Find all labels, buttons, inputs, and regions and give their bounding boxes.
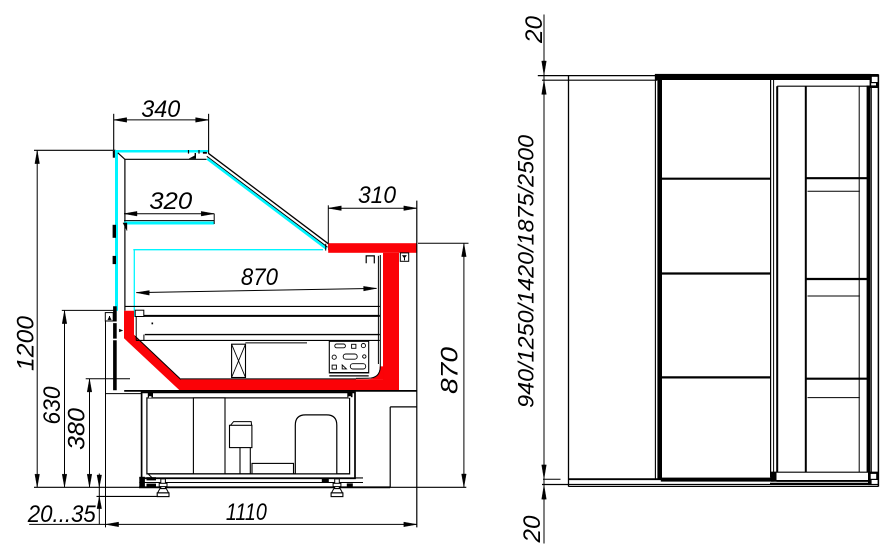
- svg-text:940/1250/1420/1875/2500: 940/1250/1420/1875/2500: [514, 134, 539, 408]
- svg-text:870: 870: [241, 264, 279, 291]
- svg-text:1200: 1200: [12, 315, 39, 371]
- svg-text:20: 20: [521, 15, 548, 44]
- svg-text:20: 20: [519, 515, 546, 544]
- svg-text:630: 630: [39, 386, 66, 425]
- svg-text:310: 310: [358, 182, 397, 209]
- svg-text:20...35: 20...35: [27, 501, 97, 528]
- svg-text:380: 380: [63, 407, 90, 450]
- svg-text:340: 340: [141, 96, 181, 123]
- svg-text:870: 870: [436, 346, 463, 394]
- svg-text:1110: 1110: [226, 499, 268, 526]
- svg-text:320: 320: [149, 188, 193, 215]
